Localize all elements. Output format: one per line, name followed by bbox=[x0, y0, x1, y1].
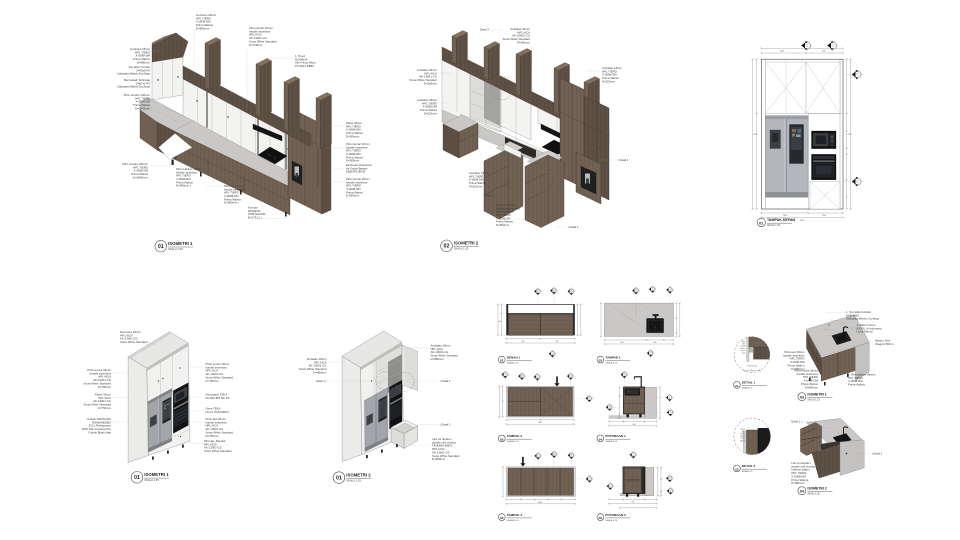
svg-text:ISOMETRI 1: ISOMETRI 1 bbox=[168, 241, 193, 246]
svg-text:D=980mm (: D=980mm ( bbox=[224, 201, 239, 205]
svg-text:kayu: kayu bbox=[742, 353, 745, 355]
svg-text:DETAIL 1: DETAIL 1 bbox=[742, 381, 756, 385]
svg-text:SKALA 1:25: SKALA 1:25 bbox=[807, 493, 820, 496]
svg-text:D=380mm: D=380mm bbox=[346, 194, 360, 198]
svg-text:Prima: Prima bbox=[741, 438, 745, 440]
svg-text:DETAIL 2: DETAIL 2 bbox=[742, 464, 756, 468]
svg-text:ISOMETRI 1: ISOMETRI 1 bbox=[807, 393, 826, 397]
svg-text:D=750mm: D=750mm bbox=[206, 379, 220, 383]
svg-text:SKALA 1:5: SKALA 1:5 bbox=[742, 470, 753, 473]
svg-text:D=750mm: D=750mm bbox=[98, 406, 112, 410]
svg-text:) Detail 3: ) Detail 3 bbox=[440, 423, 451, 427]
svg-text:SKALA 1:5: SKALA 1:5 bbox=[742, 387, 753, 390]
svg-text:04: 04 bbox=[599, 437, 603, 441]
svg-text:1800: 1800 bbox=[538, 422, 542, 424]
svg-text:Detail 1 (: Detail 1 ( bbox=[791, 420, 802, 424]
svg-text:SKALA 1:20: SKALA 1:20 bbox=[507, 361, 520, 364]
svg-text:D=750mm: D=750mm bbox=[206, 434, 220, 438]
svg-text:Gentle Black Matt: Gentle Black Matt bbox=[89, 430, 112, 434]
svg-text:BI 0731 L (: BI 0731 L ( bbox=[248, 216, 262, 220]
svg-text:Prima Walnut: Prima Walnut bbox=[848, 383, 865, 387]
svg-text:D=280mm: D=280mm bbox=[424, 81, 438, 85]
svg-text:Snow White Standard: Snow White Standard bbox=[120, 340, 148, 344]
svg-text:SKALA 1:20: SKALA 1:20 bbox=[507, 519, 520, 522]
svg-text:05: 05 bbox=[500, 516, 504, 520]
svg-text:Calacatta Marmo Cortings: Calacatta Marmo Cortings bbox=[846, 317, 880, 321]
svg-text:D=880mm: D=880mm bbox=[432, 457, 446, 461]
svg-text:) Detail 2: ) Detail 2 bbox=[872, 452, 883, 456]
svg-text:01: 01 bbox=[158, 244, 164, 250]
svg-text:D=280mm: D=280mm bbox=[517, 40, 531, 44]
svg-text:SKALA 1:25: SKALA 1:25 bbox=[144, 478, 159, 482]
svg-text:D=380mm: D=380mm bbox=[346, 134, 360, 138]
svg-text:01: 01 bbox=[500, 359, 504, 363]
svg-text:ISOMETRI 2: ISOMETRI 2 bbox=[454, 241, 479, 246]
svg-text:600: 600 bbox=[654, 342, 657, 344]
svg-text:D=980mm: D=980mm bbox=[137, 60, 151, 64]
svg-text:PX 0901 DB8K: PX 0901 DB8K bbox=[295, 64, 314, 68]
svg-text:06: 06 bbox=[599, 516, 603, 520]
svg-text:SKALA 1:25: SKALA 1:25 bbox=[168, 247, 183, 251]
svg-text:03: 03 bbox=[500, 437, 504, 441]
svg-text:Detail 3: Detail 3 bbox=[480, 28, 489, 32]
svg-text:SKALA 1:20: SKALA 1:20 bbox=[605, 361, 618, 364]
svg-text:D=880mm: D=880mm bbox=[791, 481, 805, 485]
svg-text:ISOMETRI 1: ISOMETRI 1 bbox=[144, 472, 169, 477]
svg-text:2260: 2260 bbox=[753, 134, 757, 136]
svg-text:Horno HLB 8400 P: Horno HLB 8400 P bbox=[206, 410, 230, 414]
svg-text:SKALA 1:25: SKALA 1:25 bbox=[454, 247, 469, 251]
svg-text:TAMPAK 1: TAMPAK 1 bbox=[605, 355, 621, 359]
svg-text:600: 600 bbox=[633, 424, 636, 426]
svg-text:1850: 1850 bbox=[538, 502, 542, 504]
svg-text:D=522mm: D=522mm bbox=[602, 79, 616, 83]
svg-text:D=880mm: D=880mm bbox=[431, 357, 445, 361]
svg-text:TAMPAK 2: TAMPAK 2 bbox=[507, 434, 523, 438]
svg-text:DENAH 1: DENAH 1 bbox=[507, 355, 521, 359]
svg-text:D=522mm: D=522mm bbox=[424, 111, 438, 115]
svg-text:ISOMETRI 2: ISOMETRI 2 bbox=[346, 472, 371, 477]
svg-text:SKALA 1:30: SKALA 1:30 bbox=[767, 224, 781, 227]
svg-text:TAMPAK DEPAN: TAMPAK DEPAN bbox=[767, 218, 796, 222]
svg-text:D=318mm: D=318mm bbox=[249, 43, 263, 47]
svg-text:02: 02 bbox=[599, 359, 603, 363]
svg-text:D=880mm: D=880mm bbox=[313, 370, 327, 374]
svg-text:HPL: HPL bbox=[742, 431, 745, 433]
svg-text:Calacatta Marble Exchngs: Calacatta Marble Exchngs bbox=[117, 72, 151, 76]
svg-text:) Detail 4: ) Detail 4 bbox=[618, 158, 629, 162]
svg-text:X-0098: X-0098 bbox=[740, 346, 745, 348]
svg-text:600: 600 bbox=[632, 502, 635, 504]
svg-text:D=880mm: D=880mm bbox=[805, 385, 819, 389]
svg-text:EQBXF01BXSI: EQBXF01BXSI bbox=[346, 170, 365, 174]
svg-text:SKALA 1:25: SKALA 1:25 bbox=[807, 399, 820, 402]
svg-text:01: 01 bbox=[134, 475, 140, 481]
svg-text:02: 02 bbox=[444, 244, 450, 250]
svg-text:D=(980)mm: D=(980)mm bbox=[133, 175, 149, 179]
svg-text:POTONGAN 1: POTONGAN 1 bbox=[605, 434, 626, 438]
svg-text:lem pu: lem pu bbox=[741, 350, 746, 352]
svg-text:Detail 1 (: Detail 1 ( bbox=[316, 379, 327, 383]
svg-text:TAMPAK 3: TAMPAK 3 bbox=[507, 513, 523, 517]
svg-text:) Detail 2: ) Detail 2 bbox=[440, 379, 451, 383]
svg-text:D=(980)mm: D=(980)mm bbox=[135, 106, 151, 110]
svg-text:HPL: HPL bbox=[742, 343, 745, 345]
svg-text:600: 600 bbox=[499, 321, 502, 323]
svg-text:2260: 2260 bbox=[848, 134, 852, 136]
svg-text:SKALA 1:20: SKALA 1:20 bbox=[605, 519, 618, 522]
svg-text:SKALA 1:25: SKALA 1:25 bbox=[346, 478, 361, 482]
svg-text:Calacatta Marble Exchngs: Calacatta Marble Exchngs bbox=[117, 85, 151, 89]
svg-text:01: 01 bbox=[735, 384, 739, 388]
svg-text:01: 01 bbox=[336, 476, 342, 482]
svg-text:D=980mm: D=980mm bbox=[196, 26, 210, 30]
svg-text:D=980mm (: D=980mm ( bbox=[176, 184, 191, 188]
svg-text:SKALA 1:20: SKALA 1:20 bbox=[605, 440, 618, 443]
svg-text:1100: 1100 bbox=[620, 342, 624, 344]
svg-text:POTONGAN 2: POTONGAN 2 bbox=[605, 513, 626, 517]
svg-text:900: 900 bbox=[556, 341, 559, 343]
svg-text:18mm: 18mm bbox=[741, 341, 746, 343]
svg-text:X-0098: X-0098 bbox=[740, 436, 745, 438]
svg-text:Lokal Marmo: Lokal Marmo bbox=[857, 330, 874, 334]
svg-text:) Detail 2: ) Detail 2 bbox=[568, 225, 579, 229]
svg-text:18mm: 18mm bbox=[741, 429, 746, 431]
svg-text:TIERO: TIERO bbox=[740, 434, 746, 436]
svg-text:ML 822 BIS BK SS: ML 822 BIS BK SS bbox=[206, 396, 230, 400]
svg-text:Snow White Standard: Snow White Standard bbox=[204, 449, 232, 453]
svg-text:ISOMETRI 2: ISOMETRI 2 bbox=[807, 487, 826, 491]
svg-text:Detail 1 (: Detail 1 ( bbox=[484, 194, 495, 198]
svg-text:900: 900 bbox=[522, 341, 525, 343]
svg-text:SKALA 1:20: SKALA 1:20 bbox=[507, 440, 520, 443]
svg-text:D=522mm: D=522mm bbox=[469, 184, 483, 188]
svg-text:Dummies klip: Dummies klip bbox=[747, 366, 757, 368]
svg-text:D=750mm: D=750mm bbox=[98, 385, 112, 389]
svg-text:Otagoni 500 m: Otagoni 500 m bbox=[875, 342, 894, 346]
svg-text:02: 02 bbox=[735, 467, 739, 471]
svg-text:D=560mm: D=560mm bbox=[496, 223, 510, 227]
svg-text:03: 03 bbox=[800, 396, 804, 400]
